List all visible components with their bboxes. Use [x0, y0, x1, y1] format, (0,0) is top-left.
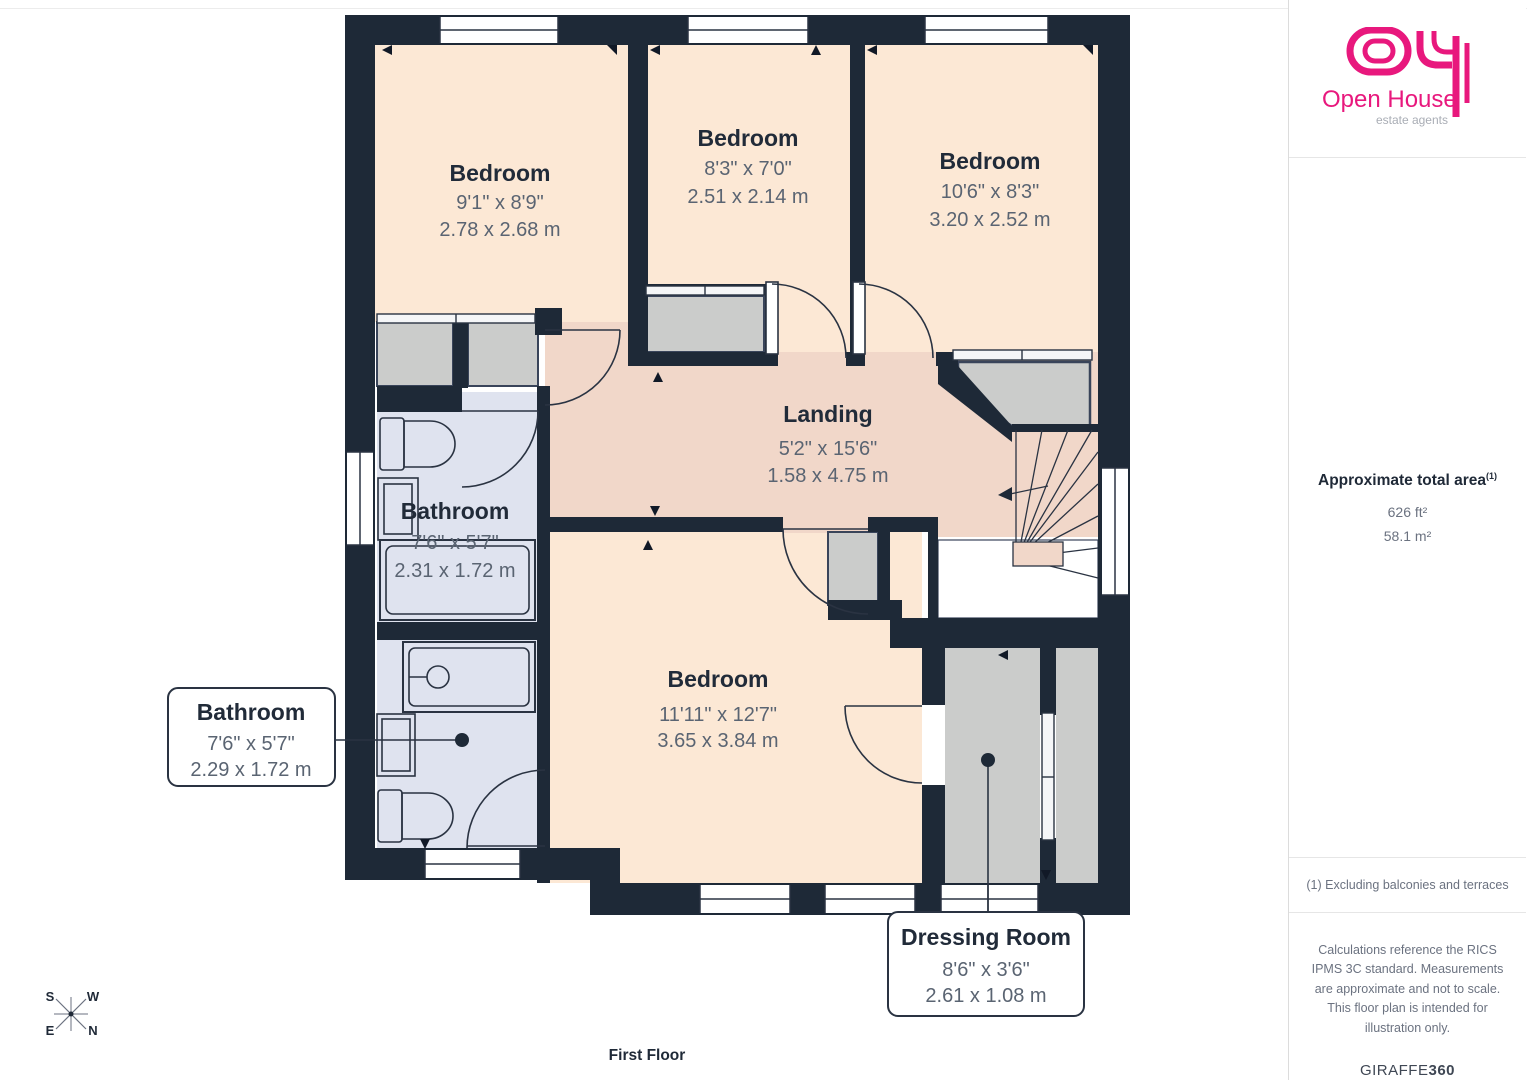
window — [925, 17, 1048, 43]
disclaimer-section: Calculations reference the RICS IPMS 3C … — [1289, 913, 1526, 1079]
wall — [537, 517, 783, 532]
wall — [628, 15, 648, 366]
dressing-leader-dot — [981, 753, 995, 767]
floorplan: Bedroom 9'1" x 8'9" 2.78 x 2.68 m Bedroo… — [0, 0, 1288, 1080]
callout-dims: 2.61 x 1.08 m — [925, 985, 1046, 1007]
compass-s: S — [46, 989, 55, 1004]
wall — [1098, 15, 1130, 915]
wall — [922, 648, 945, 705]
wall — [377, 622, 537, 640]
callout-title: Dressing Room — [901, 924, 1071, 950]
wall — [868, 517, 938, 532]
callout-dims: 7'6" x 5'7" — [207, 733, 294, 755]
wall — [453, 318, 468, 388]
area-heading: Approximate total area(1) — [1318, 471, 1497, 490]
wall — [928, 532, 938, 622]
logo-tagline: estate agents — [1375, 113, 1447, 127]
sidebar: Open House estate agents Approximate tot… — [1288, 0, 1526, 1080]
window — [825, 885, 915, 913]
window — [347, 452, 373, 545]
sliding-door — [953, 350, 1092, 360]
room-dims: 3.20 x 2.52 m — [929, 209, 1050, 231]
wall — [1012, 424, 1098, 432]
wall — [878, 532, 890, 605]
wall — [537, 410, 550, 883]
logo-brand: Open House — [1322, 86, 1457, 113]
compass-e: E — [46, 1023, 55, 1038]
window — [1102, 468, 1128, 595]
giraffe360-credit: GIRAFFE360 — [1309, 1062, 1506, 1079]
wardrobe-floor — [828, 532, 878, 605]
bathroom-callout: Bathroom 7'6" x 5'7" 2.29 x 1.72 m — [168, 688, 335, 786]
room-label: Bedroom — [698, 125, 799, 151]
compass-icon: S W E N — [46, 989, 100, 1038]
wall — [890, 618, 1098, 648]
logo-section: Open House estate agents — [1289, 0, 1526, 158]
window — [440, 17, 558, 43]
room-dims: 2.51 x 2.14 m — [687, 186, 808, 208]
credit-brand: GIRAFFE — [1360, 1062, 1429, 1079]
room-dims: 11'11" x 12'7" — [659, 704, 777, 726]
room-dims: 1.58 x 4.75 m — [767, 465, 888, 487]
room-label: Bathroom — [401, 498, 510, 524]
callout-dims: 2.29 x 1.72 m — [190, 759, 311, 781]
room-dims: 7'6" x 5'7" — [411, 532, 498, 554]
callout-title: Bathroom — [197, 699, 306, 725]
wall — [377, 386, 462, 412]
area-metric: 58.1 m² — [1318, 528, 1497, 544]
area-note-ref: (1) — [1486, 471, 1497, 481]
wall — [630, 352, 778, 366]
footnote-text: (1) Excluding balconies and terraces — [1306, 878, 1508, 892]
room-dims: 5'2" x 15'6" — [779, 438, 878, 460]
window — [700, 885, 790, 913]
area-section: Approximate total area(1) 626 ft² 58.1 m… — [1289, 158, 1526, 858]
closet-tl-a-floor — [377, 322, 453, 386]
room-dims: 9'1" x 8'9" — [456, 192, 543, 214]
compass-n: N — [88, 1023, 97, 1038]
wall — [1040, 648, 1056, 715]
dressing-room-floor — [945, 648, 1040, 885]
callout-dims: 8'6" x 3'6" — [942, 959, 1029, 981]
room-dims: 10'6" x 8'3" — [941, 181, 1040, 203]
sliding-door — [646, 286, 764, 295]
bathroom-leader-dot — [455, 733, 469, 747]
closet-tl-b-floor — [468, 322, 538, 386]
room-label: Bedroom — [668, 666, 769, 692]
disclaimer-text: Calculations reference the RICS IPMS 3C … — [1309, 941, 1506, 1038]
room-dims: 2.78 x 2.68 m — [439, 219, 560, 241]
page: Bedroom 9'1" x 8'9" 2.78 x 2.68 m Bedroo… — [0, 0, 1527, 1080]
wall — [828, 600, 902, 620]
footnote-section: (1) Excluding balconies and terraces — [1289, 858, 1526, 913]
credit-suffix: 360 — [1428, 1062, 1455, 1079]
door-patch — [783, 517, 868, 533]
open-house-logo-icon: Open House estate agents — [1320, 27, 1496, 131]
window — [688, 17, 808, 43]
area-imperial: 626 ft² — [1318, 504, 1497, 520]
room-dims: 2.31 x 1.72 m — [394, 560, 515, 582]
window — [941, 885, 1038, 913]
wall — [537, 386, 550, 412]
dressing-room-callout: Dressing Room 8'6" x 3'6" 2.61 x 1.08 m — [888, 912, 1084, 1016]
floor-title: First Floor — [609, 1047, 686, 1064]
sliding-door — [1042, 713, 1054, 840]
wall — [345, 15, 375, 880]
window — [425, 850, 520, 878]
compass-w: W — [87, 989, 100, 1004]
wall — [1040, 838, 1056, 883]
dressing-closet-floor — [1056, 648, 1098, 885]
wall — [922, 785, 945, 883]
closet-tm-floor — [646, 296, 764, 352]
sliding-door — [377, 314, 535, 323]
area-heading-text: Approximate total area — [1318, 472, 1486, 489]
room-label: Bedroom — [450, 160, 551, 186]
room-dims: 8'3" x 7'0" — [704, 158, 791, 180]
room-dims: 3.65 x 3.84 m — [657, 730, 778, 752]
room-label: Bedroom — [940, 148, 1041, 174]
wall — [535, 308, 562, 335]
room-label: Landing — [783, 401, 872, 427]
